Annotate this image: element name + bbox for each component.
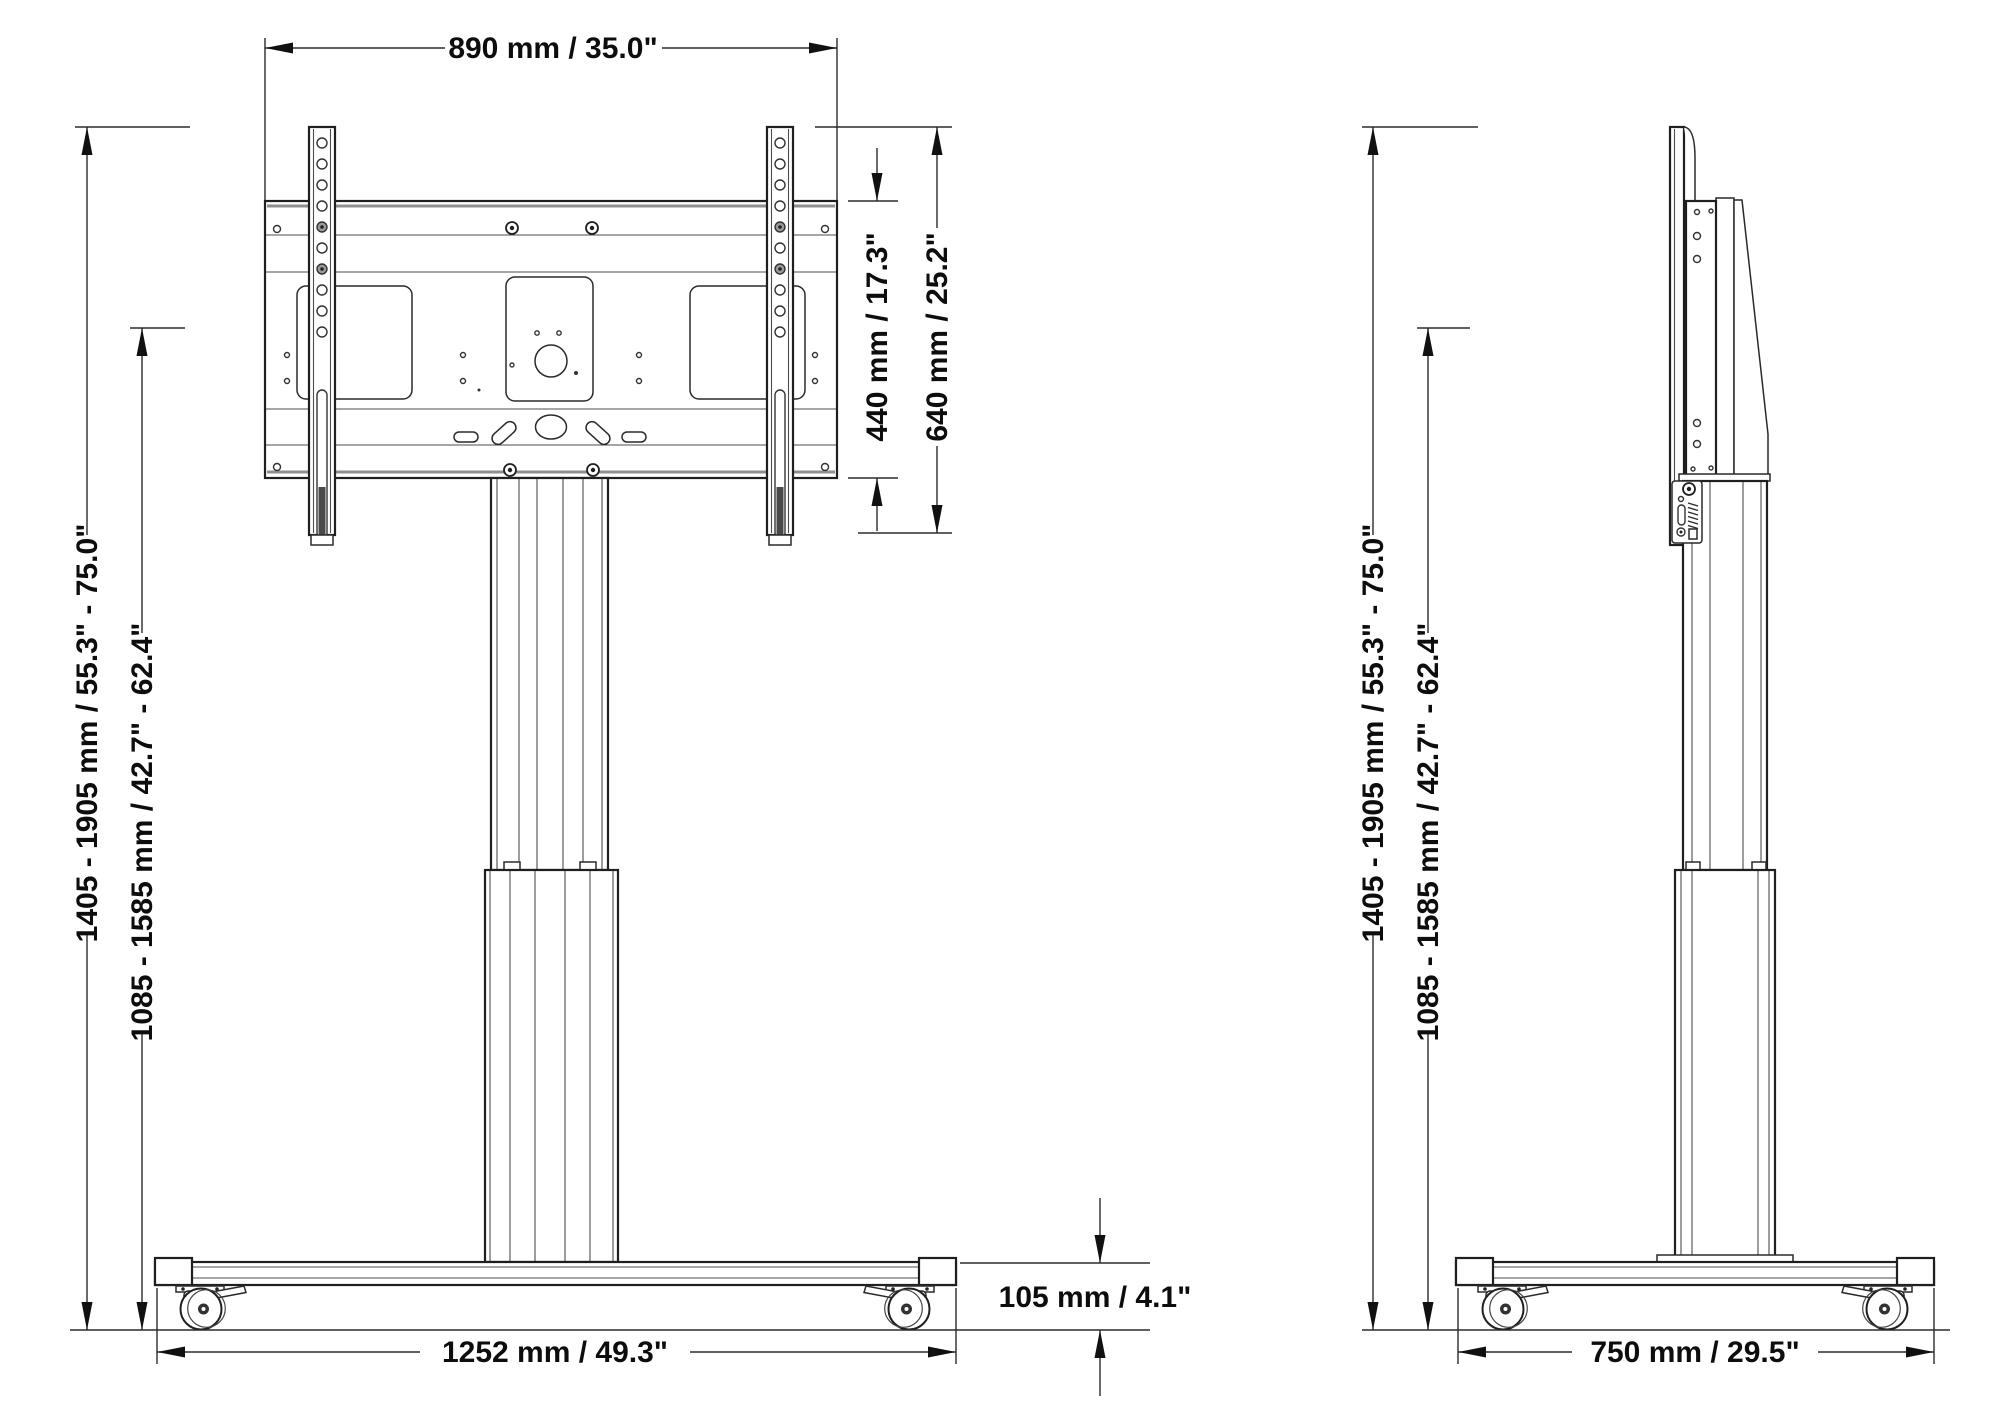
dim-base-width-label: 1252 mm / 49.3" — [442, 1336, 668, 1369]
base-endcap — [155, 1258, 192, 1285]
dim-base-depth-label: 750 mm / 29.5" — [1590, 1336, 1799, 1369]
front-view — [70, 127, 1150, 1330]
plate-panel-center — [506, 277, 593, 401]
mount-plate — [265, 201, 837, 478]
base-endcap — [1456, 1258, 1493, 1285]
screw-icon — [587, 464, 599, 476]
plate-corner-hole — [274, 464, 281, 471]
dim-base-height: 105 mm / 4.1" — [960, 1198, 1191, 1396]
column-sleeve-side — [1675, 870, 1775, 1262]
dim-base-width: 1252 mm / 49.3" — [157, 1288, 956, 1369]
support-wedge — [1734, 200, 1768, 478]
dimension-drawing: 890 mm / 35.0" 640 mm / 25.2" 440 mm / 1… — [0, 0, 2000, 1416]
caster-front-right — [864, 1286, 934, 1330]
caster-front-left — [176, 1286, 246, 1330]
dim-center-height-front-label: 1085 - 1585 mm / 42.7" - 62.4" — [126, 623, 159, 1042]
caster-side-left — [1478, 1286, 1548, 1330]
height-latch — [1672, 481, 1702, 543]
vesa-rail-left — [309, 127, 335, 545]
dim-overall-height-side-label: 1405 - 1905 mm / 55.3" - 75.0" — [1357, 524, 1390, 943]
dim-center-height-front: 1085 - 1585 mm / 42.7" - 62.4" — [126, 328, 185, 1330]
screw-icon — [506, 222, 518, 234]
column-sleeve-front — [485, 870, 618, 1262]
plate-corner-hole — [274, 226, 281, 233]
dim-plate-height-label: 440 mm / 17.3" — [861, 232, 894, 441]
drawing-page: 890 mm / 35.0" 640 mm / 25.2" 440 mm / 1… — [0, 0, 2000, 1416]
dim-plate-height: 440 mm / 17.3" — [848, 148, 898, 531]
screw-icon — [504, 464, 516, 476]
base-endcap — [919, 1258, 956, 1285]
center-hole — [535, 345, 567, 377]
dim-mount-width-label: 890 mm / 35.0" — [448, 32, 657, 65]
lift-column-side — [1672, 474, 1775, 1262]
dim-center-height-side-label: 1085 - 1585 mm / 42.7" - 62.4" — [1412, 623, 1445, 1042]
dim-center-height-side: 1085 - 1585 mm / 42.7" - 62.4" — [1412, 328, 1470, 1330]
base-side — [1456, 1255, 1934, 1285]
plate-corner-hole — [822, 226, 829, 233]
dim-mount-width: 890 mm / 35.0" — [265, 32, 837, 200]
dim-base-depth: 750 mm / 29.5" — [1458, 1288, 1934, 1369]
dim-base-height-label: 105 mm / 4.1" — [999, 1281, 1192, 1314]
side-view — [1362, 127, 1950, 1330]
plate-corner-hole — [822, 464, 829, 471]
base-endcap — [1897, 1258, 1934, 1285]
mount-bracket-side — [1686, 198, 1768, 478]
lift-column-front — [485, 478, 618, 1262]
screw-icon — [586, 222, 598, 234]
base-front — [155, 1258, 956, 1285]
caster-side-right — [1842, 1286, 1912, 1330]
dim-overall-height-front-label: 1405 - 1905 mm / 55.3" - 75.0" — [71, 524, 104, 943]
dim-bracket-height-label: 640 mm / 25.2" — [921, 232, 954, 441]
vesa-rail-right — [767, 127, 793, 545]
